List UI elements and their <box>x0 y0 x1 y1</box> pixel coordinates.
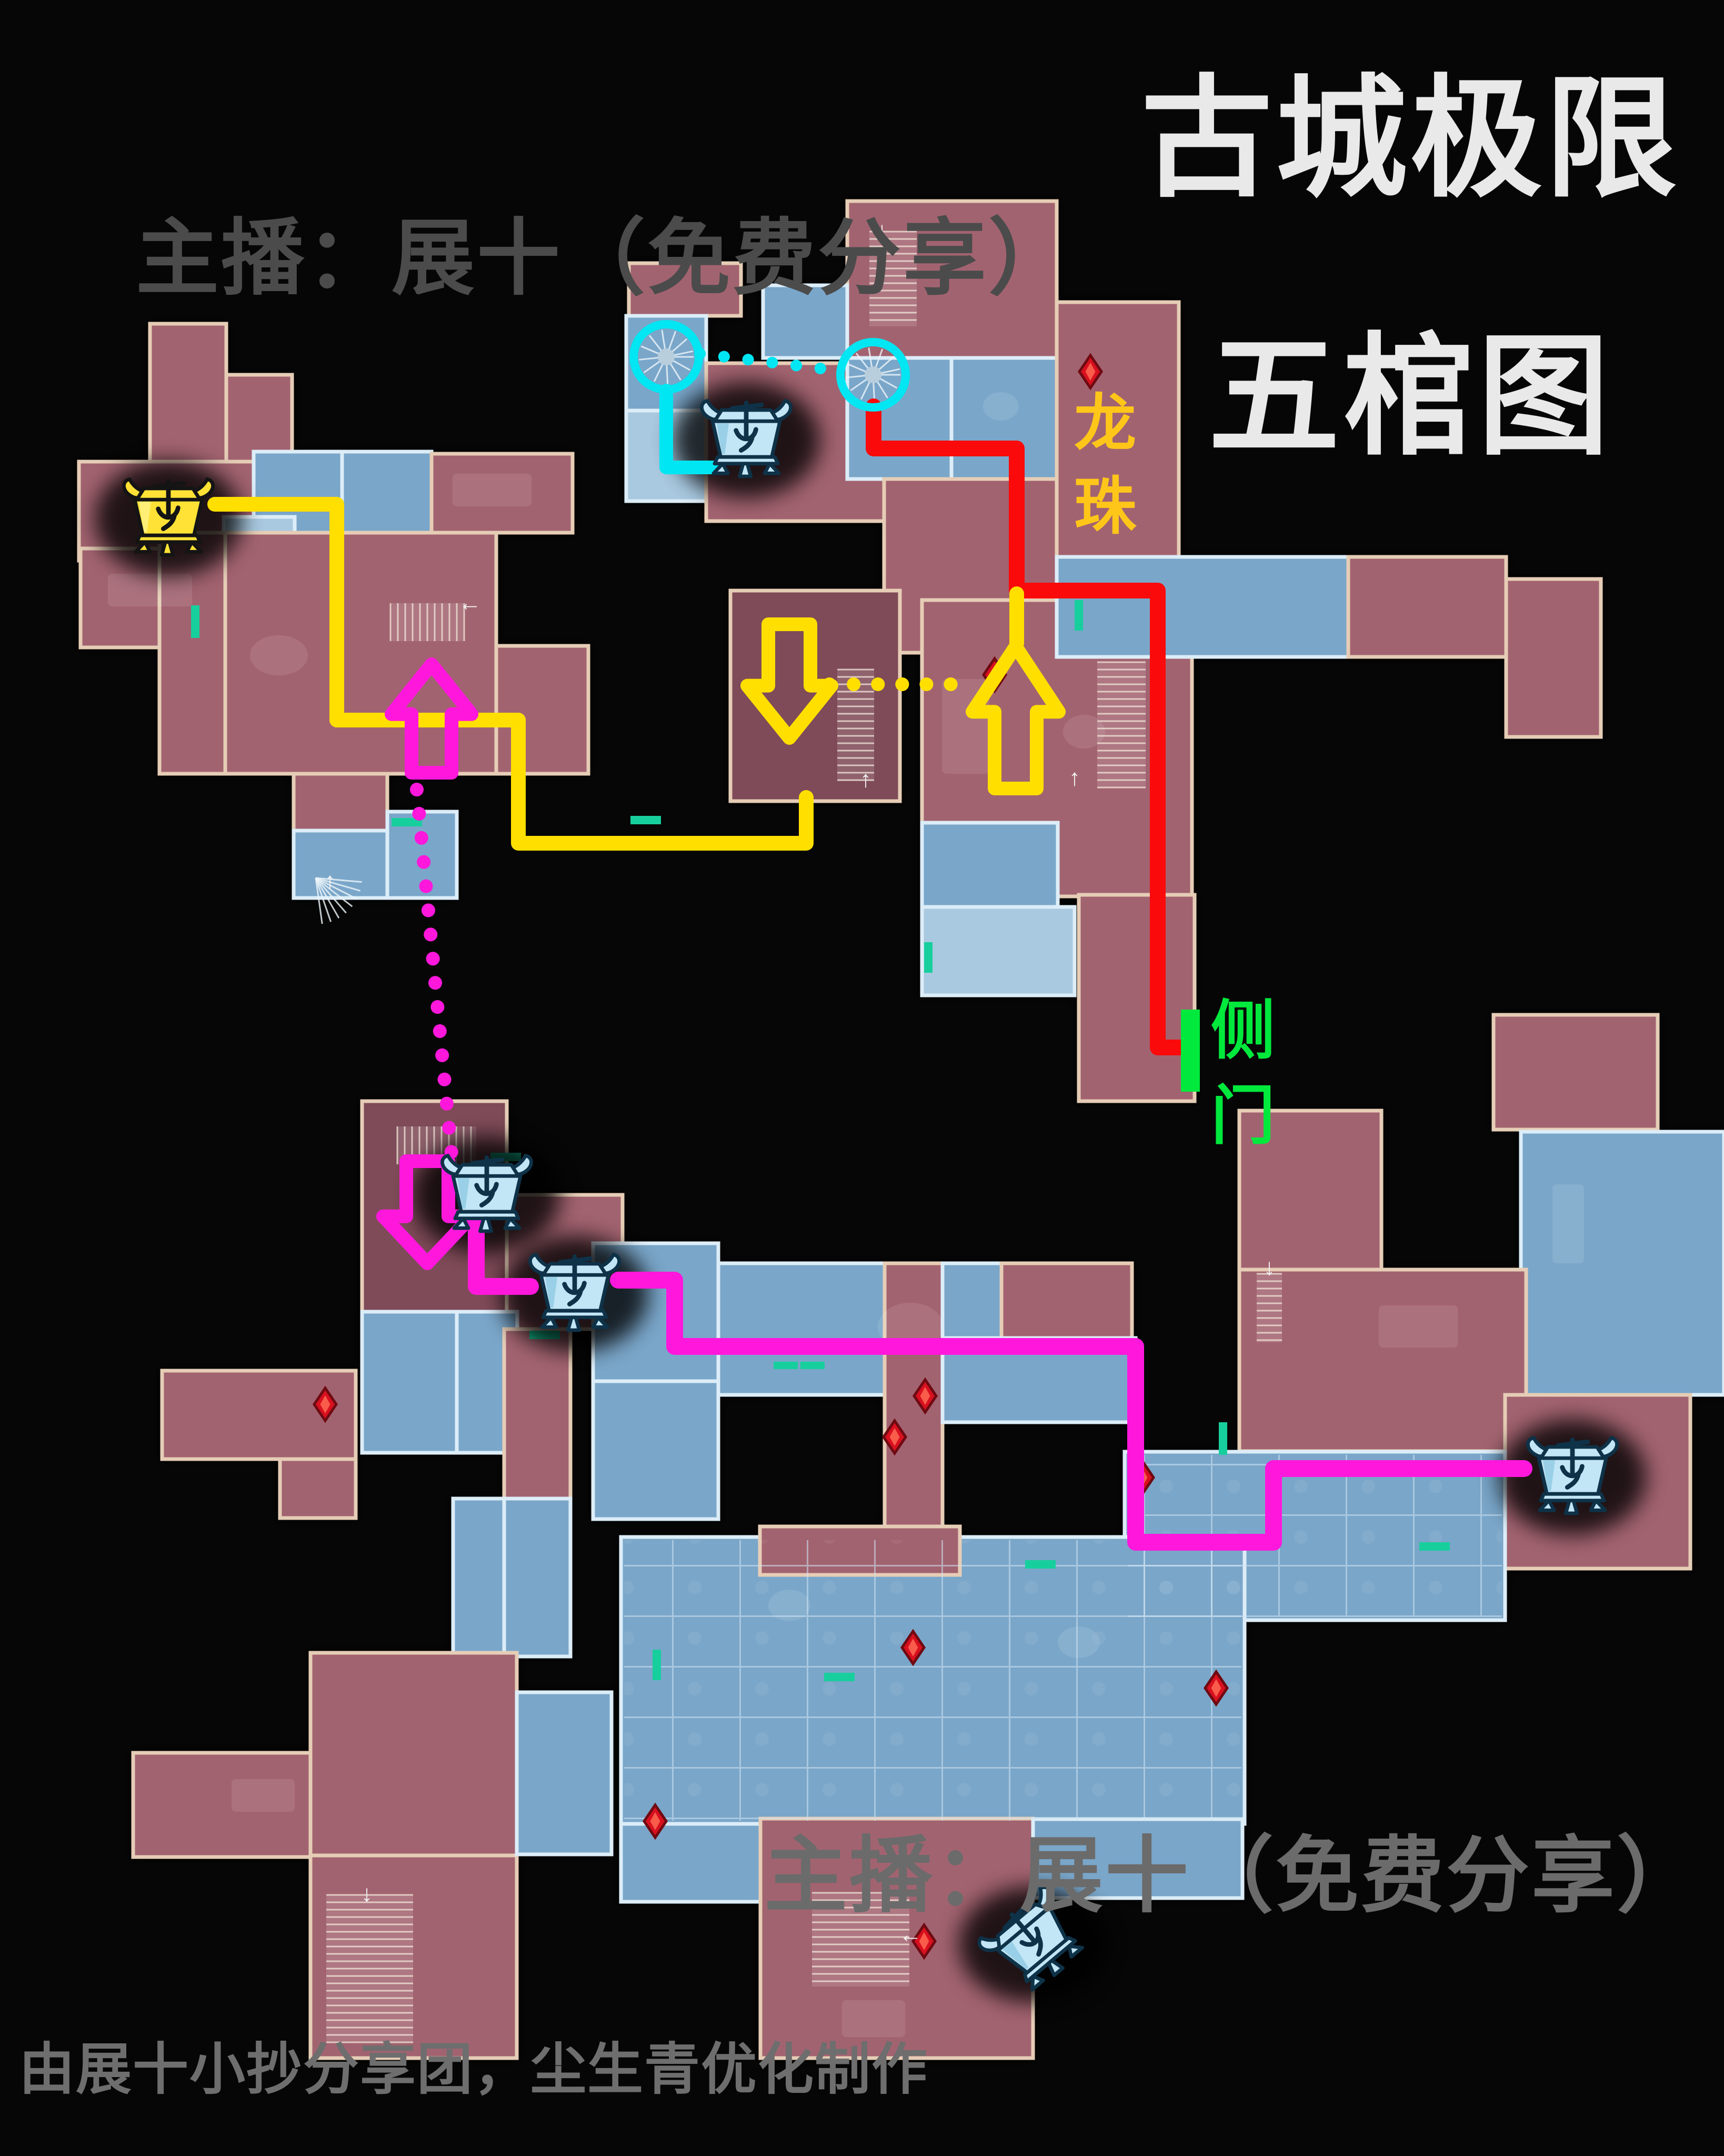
map-stage: ←↑↑↑↓↓↓← 龙珠侧门 主播：展十（免费分享） 古城极限 五棺图 主播：展十… <box>0 0 1724 2156</box>
credit-line: 由展十小抄分享团，尘生青优化制作 <box>19 2039 928 2101</box>
page-title-line1: 古城极限 <box>1141 65 1680 212</box>
map-room <box>504 1329 570 1499</box>
map-room <box>310 1653 517 1855</box>
door-marker <box>1075 600 1083 631</box>
stair-direction-glyph: ↑ <box>1069 765 1080 791</box>
door-marker <box>630 816 661 824</box>
map-room <box>718 1263 885 1395</box>
side-door-label-char: 门 <box>1211 1080 1275 1152</box>
door-marker <box>774 1362 798 1369</box>
map-room <box>1506 579 1601 737</box>
staircase-base <box>1097 662 1146 788</box>
map-room <box>1239 1270 1526 1451</box>
map-room <box>517 1692 612 1854</box>
door-marker <box>824 1673 855 1681</box>
map-room <box>362 1312 457 1453</box>
map-room <box>593 1381 718 1519</box>
map-room <box>1001 1263 1132 1338</box>
door-marker <box>653 1650 661 1680</box>
room-ornament <box>250 635 308 675</box>
room-ornament <box>1552 1184 1584 1263</box>
door-marker <box>191 605 199 638</box>
coffin-icon <box>701 401 790 476</box>
page-title-line2: 五棺图 <box>1208 323 1612 470</box>
map-room <box>621 1824 779 1902</box>
map-room <box>1057 557 1348 657</box>
map-room <box>922 823 1058 907</box>
staircase <box>326 1895 413 2042</box>
watermark-bottom: 主播：展十（免费分享） <box>764 1830 1702 1922</box>
map-room <box>922 907 1075 995</box>
map-room <box>1079 895 1195 1101</box>
side-door-label-char: 侧 <box>1211 995 1275 1066</box>
spiral-center <box>658 348 675 365</box>
door-marker <box>924 942 933 973</box>
side-door-layer <box>1181 1010 1200 1092</box>
dragon-pearl-label-char: 龙 <box>1074 389 1136 458</box>
map-room <box>504 1499 570 1656</box>
stair-direction-glyph: ← <box>899 1922 922 1948</box>
room-ornament <box>768 1590 810 1621</box>
stair-direction-glyph: ↓ <box>361 1881 373 1907</box>
stair-direction-glyph: ← <box>458 590 482 616</box>
coffin-icon <box>124 479 213 555</box>
room-ornament <box>1058 1626 1100 1658</box>
map-room <box>496 646 588 774</box>
room-ornament <box>108 574 192 606</box>
room-grid-walls <box>624 1540 1241 1821</box>
spiral-center <box>865 366 881 383</box>
map-room <box>1494 1015 1658 1130</box>
coffin-icon <box>442 1155 531 1231</box>
room-ornament <box>453 474 532 506</box>
map-room <box>1348 557 1506 657</box>
staircase <box>1257 1274 1282 1342</box>
room-ornament <box>983 392 1019 421</box>
room-ornament <box>232 1779 295 1812</box>
door-marker <box>800 1362 825 1369</box>
dragon-pearl-label-char: 珠 <box>1074 472 1137 542</box>
side-door-marker <box>1181 1010 1200 1092</box>
room-ornament <box>1379 1305 1458 1347</box>
coffin-icon <box>530 1254 619 1330</box>
coffin-icon <box>1528 1438 1617 1513</box>
map-room <box>943 1263 1001 1338</box>
door-marker <box>1219 1422 1227 1455</box>
stair-direction-glyph: ↑ <box>324 868 336 894</box>
map-room <box>294 774 387 831</box>
staircase <box>1097 662 1146 788</box>
map-room <box>1521 1132 1724 1395</box>
room-ornament <box>842 2000 905 2037</box>
stair-direction-glyph: ↑ <box>860 766 871 792</box>
door-marker <box>1025 1560 1056 1569</box>
watermark-top: 主播：展十（免费分享） <box>136 212 1074 305</box>
map-room <box>294 831 387 898</box>
stair-direction-glyph: ↓ <box>1264 1254 1275 1280</box>
map-room <box>150 324 226 482</box>
door-marker <box>1419 1542 1450 1551</box>
map-room <box>280 1459 356 1518</box>
staircase <box>390 603 464 641</box>
